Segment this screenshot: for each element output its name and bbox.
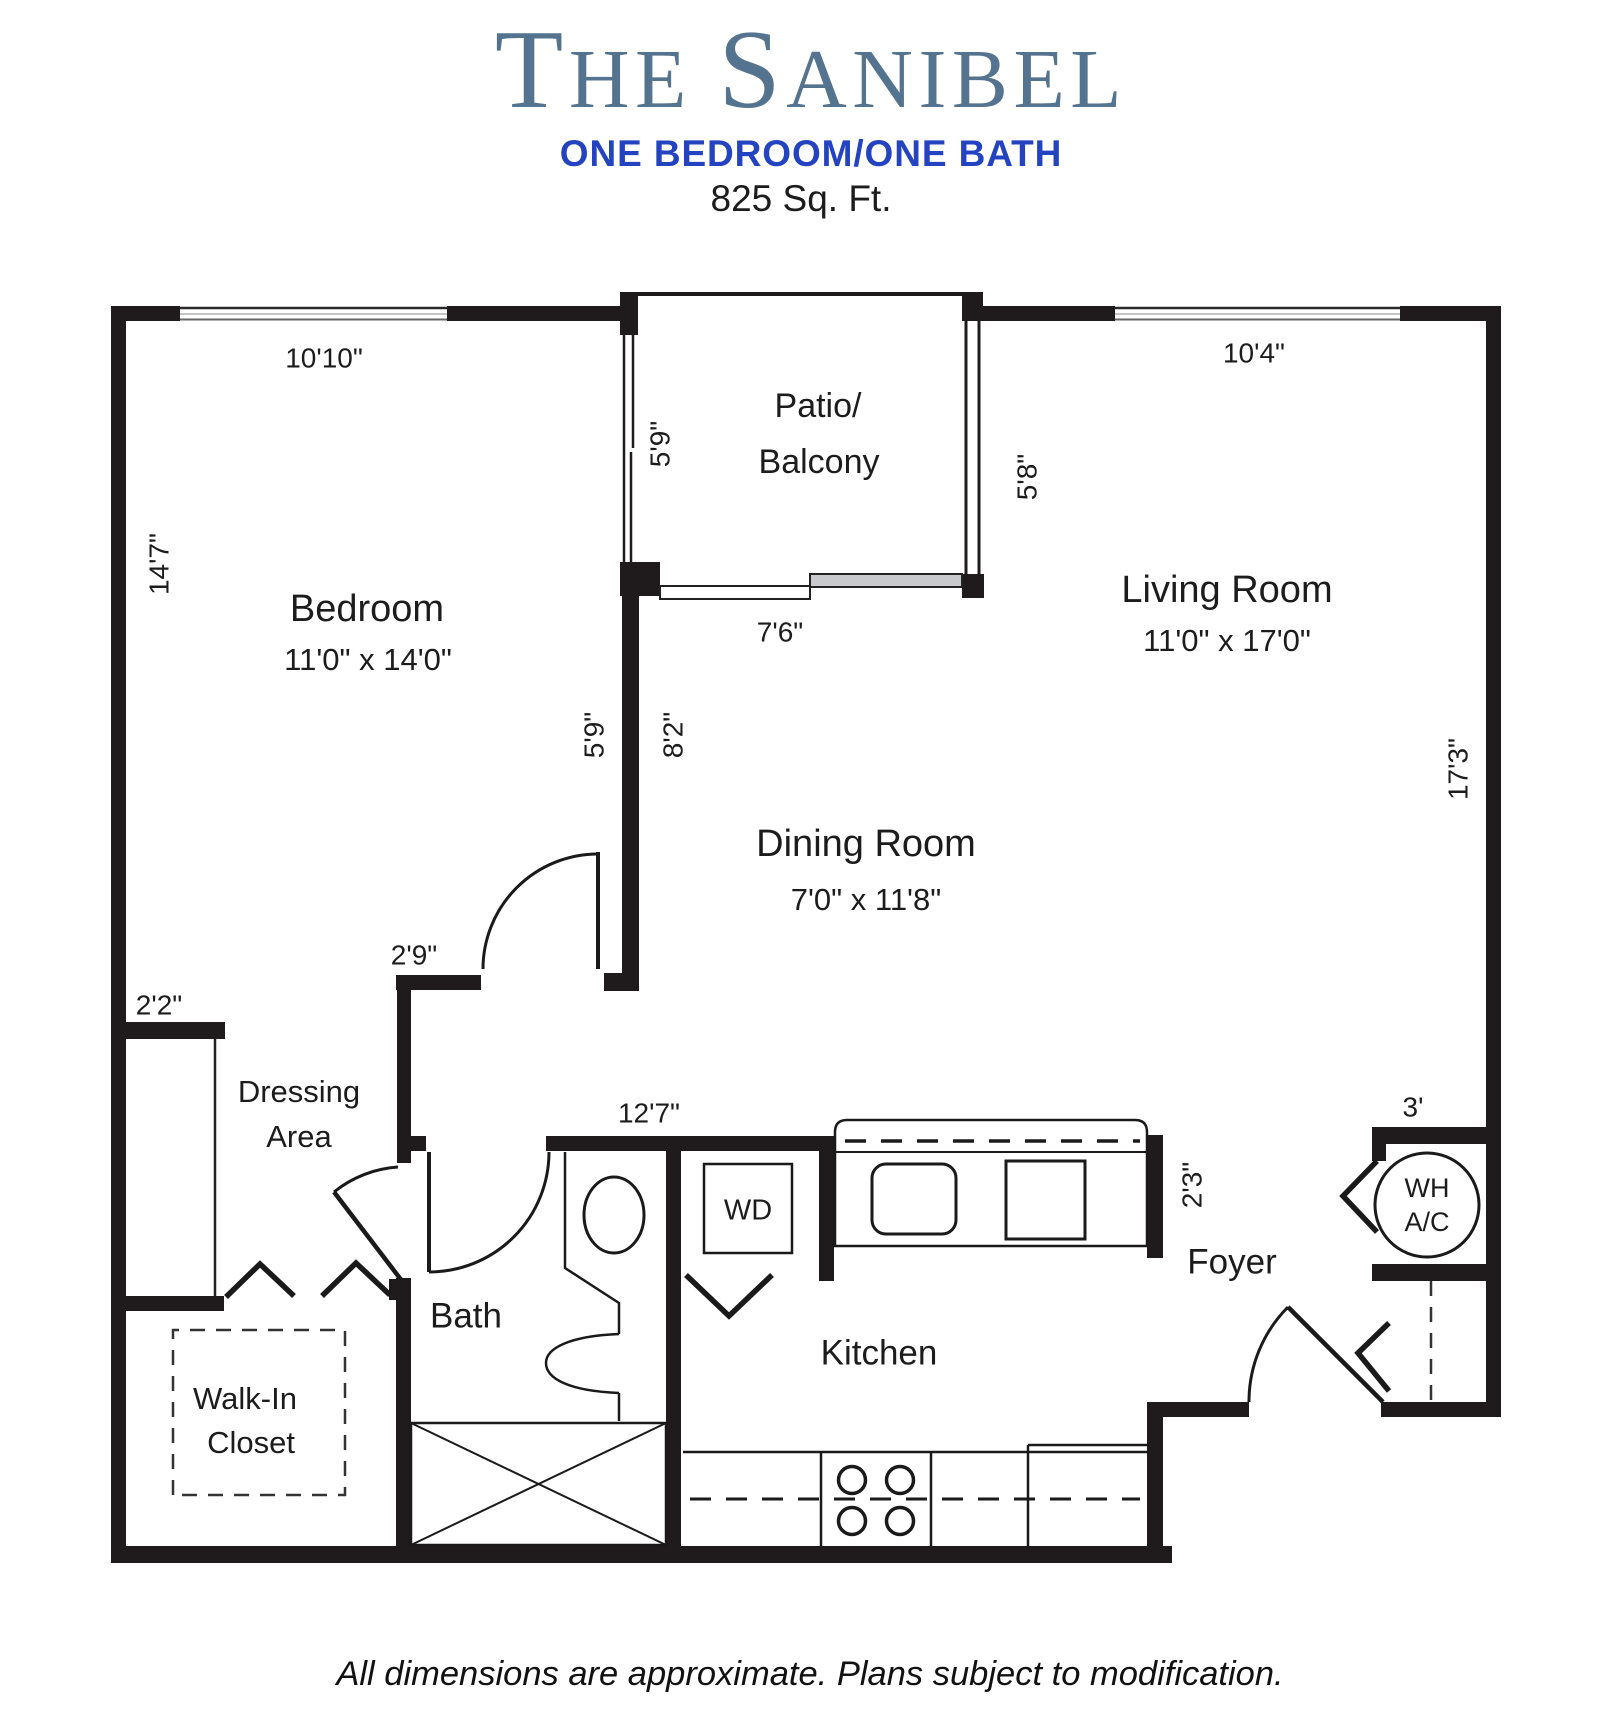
svg-text:Bath: Bath xyxy=(430,1296,502,1335)
svg-text:11'0" x 14'0": 11'0" x 14'0" xyxy=(284,642,452,677)
svg-text:7'6": 7'6" xyxy=(757,616,803,647)
svg-text:WD: WD xyxy=(724,1195,772,1227)
svg-text:5'9": 5'9" xyxy=(644,421,675,467)
svg-text:Area: Area xyxy=(266,1119,332,1154)
svg-text:Patio/: Patio/ xyxy=(775,387,862,425)
svg-text:8'2": 8'2" xyxy=(657,712,688,758)
svg-text:11'0" x 17'0": 11'0" x 17'0" xyxy=(1143,623,1311,658)
svg-text:12'7": 12'7" xyxy=(618,1097,680,1128)
svg-text:Dressing: Dressing xyxy=(238,1074,360,1109)
svg-text:Kitchen: Kitchen xyxy=(821,1333,938,1372)
svg-text:10'4": 10'4" xyxy=(1223,337,1285,368)
svg-text:5'9": 5'9" xyxy=(578,712,609,758)
svg-text:All dimensions are approximate: All dimensions are approximate. Plans su… xyxy=(334,1655,1283,1693)
svg-text:2'9": 2'9" xyxy=(391,939,437,970)
svg-text:Living Room: Living Room xyxy=(1121,569,1332,611)
svg-text:2'2": 2'2" xyxy=(136,989,182,1020)
svg-text:Balcony: Balcony xyxy=(759,443,880,481)
svg-text:5'8": 5'8" xyxy=(1011,454,1042,500)
svg-text:7'0" x 11'8": 7'0" x 11'8" xyxy=(791,882,941,917)
svg-text:Dining Room: Dining Room xyxy=(756,823,976,865)
svg-text:Closet: Closet xyxy=(207,1425,295,1460)
svg-text:Walk-In: Walk-In xyxy=(193,1381,297,1416)
svg-text:2'3": 2'3" xyxy=(1176,1162,1207,1208)
svg-text:WH: WH xyxy=(1405,1173,1450,1203)
svg-text:3': 3' xyxy=(1403,1091,1424,1122)
svg-text:14'7": 14'7" xyxy=(143,533,174,595)
svg-text:ONE BEDROOM/ONE BATH: ONE BEDROOM/ONE BATH xyxy=(560,133,1062,174)
svg-text:825 Sq. Ft.: 825 Sq. Ft. xyxy=(711,178,892,219)
svg-text:Bedroom: Bedroom xyxy=(290,588,444,630)
svg-text:A/C: A/C xyxy=(1404,1207,1449,1237)
svg-text:10'10": 10'10" xyxy=(285,342,363,373)
svg-text:17'3": 17'3" xyxy=(1442,738,1473,800)
svg-text:Foyer: Foyer xyxy=(1187,1242,1277,1281)
